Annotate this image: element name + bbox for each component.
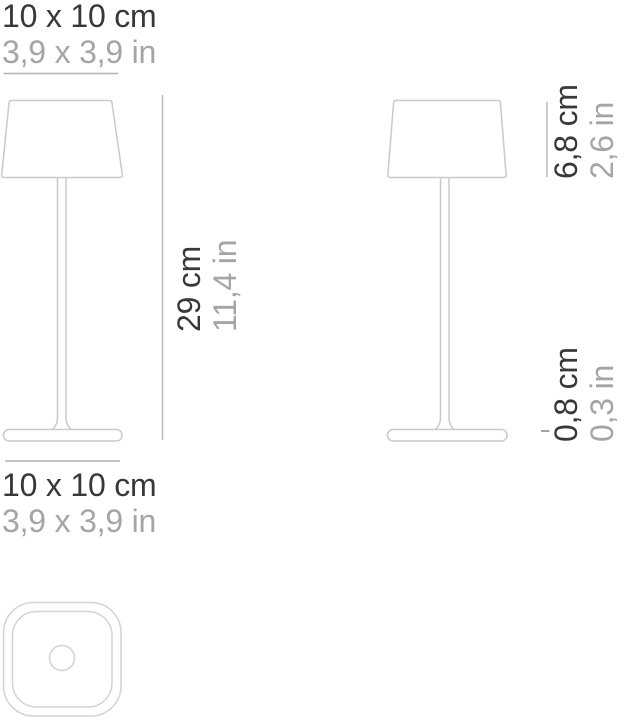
lamp-shade-side (388, 101, 506, 178)
shade-height-label: 6,8 cm 2,6 in (548, 84, 620, 179)
base-height-metric: 0,8 cm (548, 347, 584, 442)
base-height-label: 0,8 cm 0,3 in (548, 347, 620, 442)
total-height-imperial: 11,4 in (207, 240, 243, 332)
lamp-stem-front (53, 179, 58, 430)
shade-height-imperial: 2,6 in (584, 84, 620, 179)
technical-drawing (0, 0, 630, 720)
base-height-imperial: 0,3 in (584, 347, 620, 442)
base-width-metric: 10 x 10 cm (2, 467, 157, 503)
lamp-base-top-view-drawing (4, 603, 122, 717)
top-width-label: 10 x 10 cm 3,9 x 3,9 in (2, 0, 157, 70)
base-width-imperial: 3,9 x 3,9 in (2, 503, 157, 539)
lamp-shade-front (2, 101, 123, 178)
base-top-view-button-icon (50, 646, 75, 671)
lamp-dimensions-diagram: 10 x 10 cm 3,9 x 3,9 in 29 cm 11,4 in 6,… (0, 0, 630, 720)
lamp-side-view-drawing (388, 101, 508, 442)
base-width-label: 10 x 10 cm 3,9 x 3,9 in (2, 467, 157, 539)
base-top-view-outer-edge (4, 603, 122, 717)
lamp-base-side (388, 430, 508, 442)
base-top-view-inner-edge (13, 612, 113, 708)
lamp-stem-side (449, 179, 454, 430)
lamp-stem-side (436, 179, 441, 430)
lamp-stem-front (66, 179, 71, 430)
total-height-label: 29 cm 11,4 in (171, 240, 243, 332)
lamp-front-view-drawing (2, 101, 123, 442)
top-width-imperial: 3,9 x 3,9 in (2, 34, 157, 70)
total-height-metric: 29 cm (171, 240, 207, 332)
shade-height-metric: 6,8 cm (548, 84, 584, 179)
lamp-base-front (4, 430, 123, 442)
top-width-metric: 10 x 10 cm (2, 0, 157, 34)
